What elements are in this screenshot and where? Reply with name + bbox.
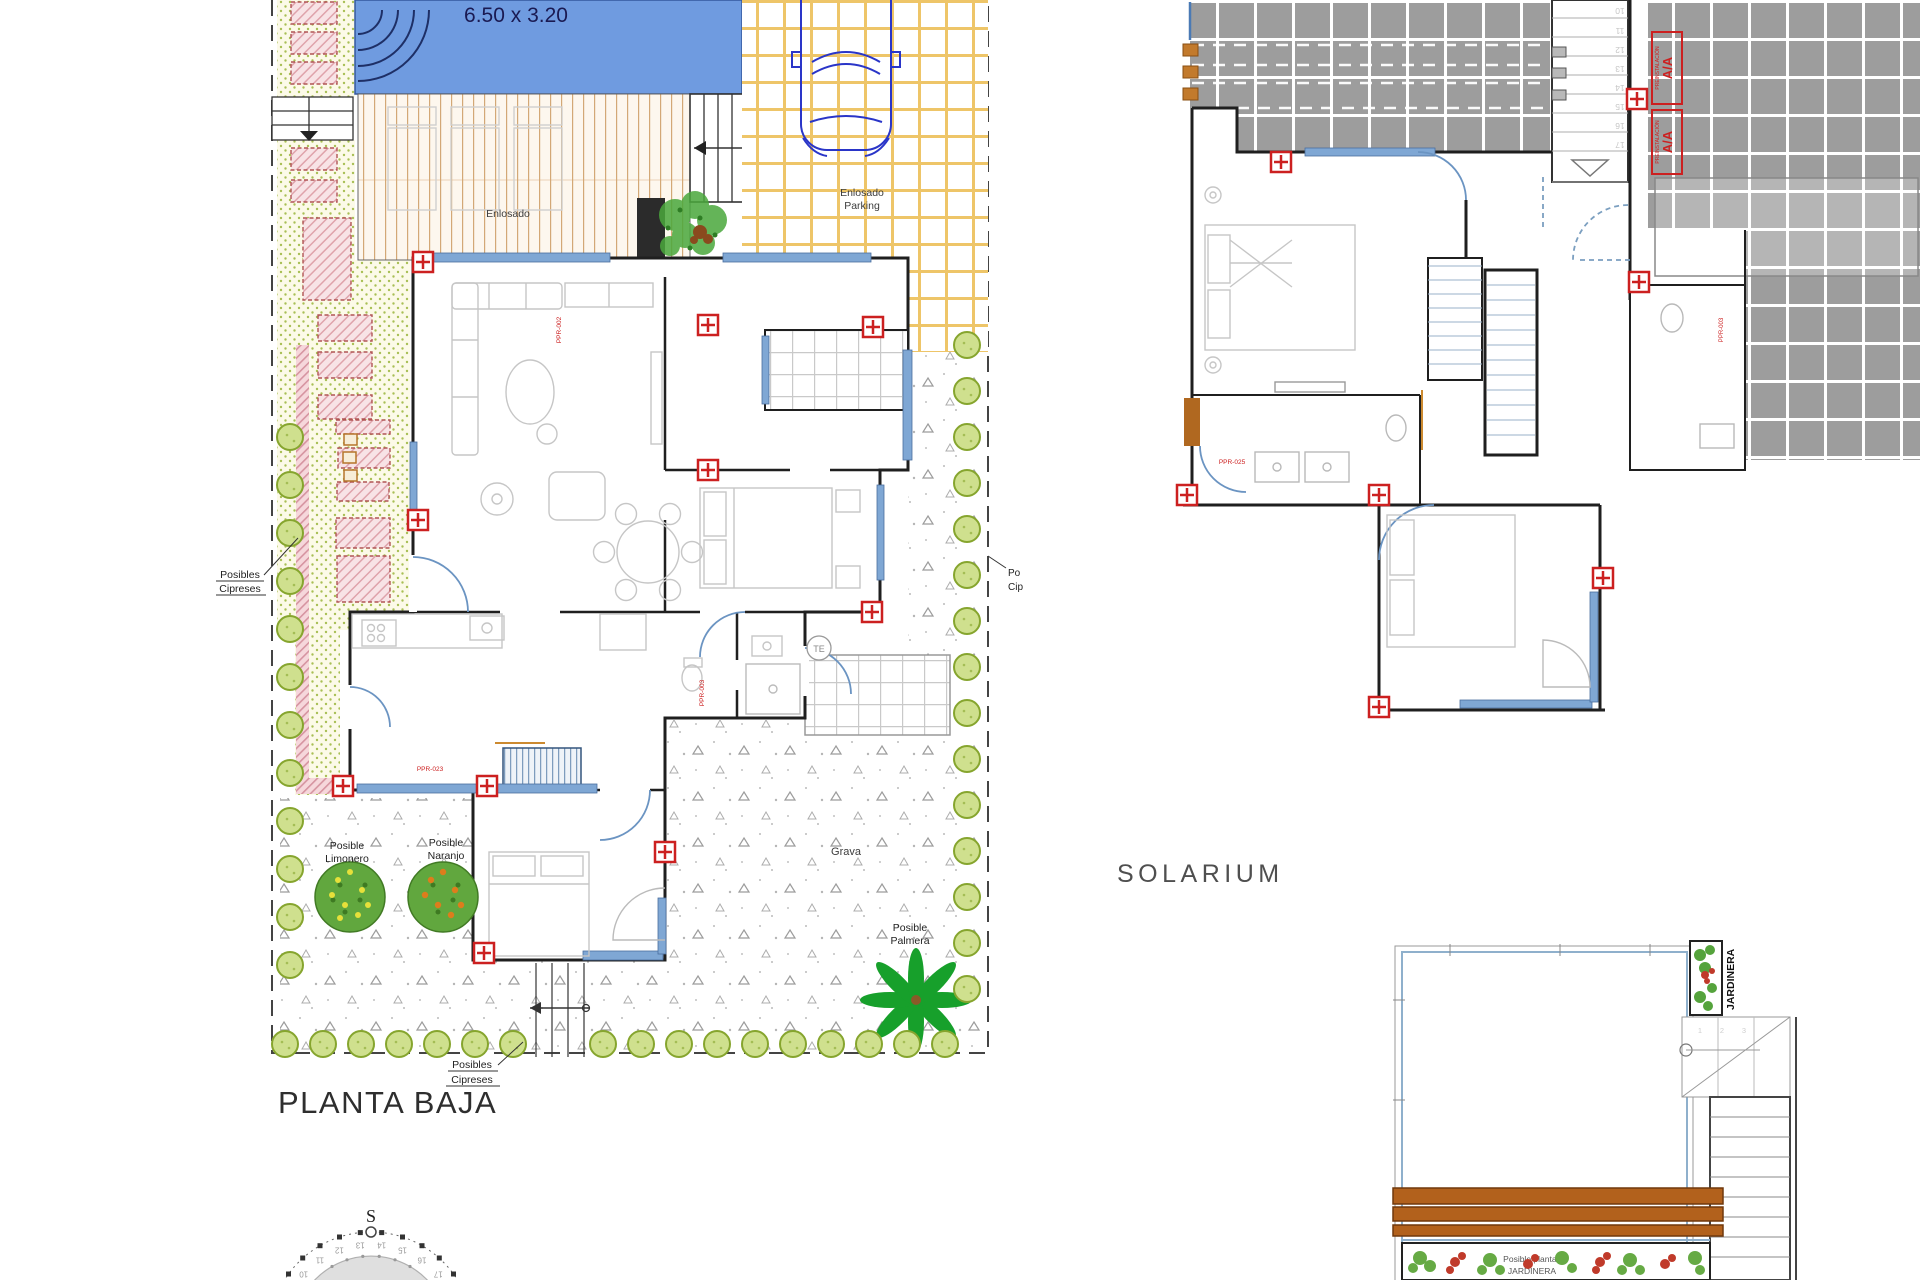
compass-south-label: S bbox=[366, 1206, 376, 1226]
upper-window-markers bbox=[1177, 89, 1649, 717]
bathroom-right bbox=[1630, 285, 1745, 470]
deck-label: Enlosado bbox=[486, 208, 530, 220]
svg-text:10: 10 bbox=[1615, 6, 1625, 16]
jardinera-label: JARDINERA bbox=[1725, 948, 1737, 1010]
patio-tiles-bottom bbox=[805, 655, 950, 735]
upper-stairs: 10 11 12 13 14 15 16 17 bbox=[1552, 0, 1628, 182]
closets-stairs bbox=[1428, 258, 1537, 455]
room-code: PPR-003 bbox=[699, 679, 706, 706]
pool-dimensions: 6.50 x 3.20 bbox=[464, 4, 568, 27]
solarium-title: SOLARIUM bbox=[1117, 860, 1284, 888]
sun-compass: S 10 11 12 13 14 15 16 17 bbox=[269, 1206, 473, 1280]
deck-stairs bbox=[690, 94, 745, 202]
svg-text:12: 12 bbox=[334, 1246, 343, 1255]
svg-text:Cip: Cip bbox=[1008, 582, 1023, 593]
svg-text:2: 2 bbox=[1720, 1026, 1724, 1035]
te-label: TE bbox=[813, 644, 825, 654]
parking-label-1: Enlosado bbox=[840, 187, 884, 199]
svg-text:12: 12 bbox=[1615, 45, 1625, 55]
ac-label: A/A bbox=[1660, 56, 1675, 79]
garden-stairs-top bbox=[272, 97, 353, 141]
ac-small-label: PREINSTALACIÓN bbox=[1654, 120, 1661, 164]
room-code: PPR-003 bbox=[1719, 317, 1725, 342]
roof-tiles-left bbox=[1190, 0, 1550, 152]
svg-text:10: 10 bbox=[299, 1269, 308, 1278]
jardinera-bottom: Posible plantas JARDINERA bbox=[1402, 1240, 1710, 1280]
svg-text:Posibles: Posibles bbox=[220, 569, 260, 581]
lemon-label-2: Limonero bbox=[325, 853, 369, 865]
roof-eave-outline bbox=[1655, 178, 1918, 276]
compass-south-point bbox=[366, 1227, 376, 1237]
svg-text:16: 16 bbox=[417, 1255, 426, 1264]
palm-label-1: Posible bbox=[893, 922, 928, 934]
parking-label-2: Parking bbox=[844, 200, 880, 212]
gravel-label: Grava bbox=[831, 846, 862, 858]
pergola-beams bbox=[1393, 1188, 1723, 1236]
jardinera-top: JARDINERA bbox=[1690, 941, 1737, 1015]
upper-windows bbox=[1305, 148, 1598, 708]
floorplan-drawing: TE bbox=[0, 0, 1920, 1280]
svg-text:Po: Po bbox=[1008, 568, 1021, 579]
edge-vents bbox=[1183, 44, 1198, 100]
orange-label-2: Naranjo bbox=[428, 850, 465, 862]
upper-door-arcs bbox=[1200, 152, 1630, 560]
svg-text:11: 11 bbox=[315, 1255, 324, 1264]
room-code: PPR-002 bbox=[556, 316, 563, 343]
lemon-label-1: Posible bbox=[330, 840, 365, 852]
cypress-label-right: Po Cip bbox=[988, 556, 1023, 593]
lemon-tree bbox=[315, 862, 385, 932]
ac-label: A/A bbox=[1660, 130, 1675, 153]
svg-text:17: 17 bbox=[433, 1269, 442, 1278]
patio-tiles-top bbox=[765, 330, 908, 410]
small-pots bbox=[343, 434, 357, 481]
planter-label-2: JARDINERA bbox=[1508, 1266, 1557, 1276]
svg-text:13: 13 bbox=[1615, 64, 1625, 74]
door-gap bbox=[409, 555, 417, 612]
solarium-terrace-plan: JARDINERA 1 2 3 Posible plantas bbox=[1393, 941, 1796, 1280]
svg-text:14: 14 bbox=[1615, 83, 1625, 93]
room-code: PPR-023 bbox=[417, 766, 444, 773]
orange-label-1: Posible bbox=[429, 837, 464, 849]
svg-text:13: 13 bbox=[355, 1241, 364, 1250]
svg-text:Posibles: Posibles bbox=[452, 1059, 492, 1071]
floorplan-sheet: TE bbox=[0, 0, 1920, 1280]
room-code: PPR-025 bbox=[1219, 459, 1246, 466]
ground-floor-plan: TE bbox=[216, 0, 1023, 1280]
palm-label-2: Palmera bbox=[890, 935, 929, 947]
entry-door-upper bbox=[1184, 398, 1200, 446]
svg-text:16: 16 bbox=[1615, 121, 1625, 131]
svg-text:3: 3 bbox=[1742, 1026, 1746, 1035]
svg-text:Cipreses: Cipreses bbox=[219, 583, 260, 595]
ac-small-label: PREINSTALACIÓN bbox=[1654, 46, 1661, 90]
te-symbol: TE bbox=[807, 636, 831, 660]
svg-text:14: 14 bbox=[377, 1241, 386, 1250]
svg-text:15: 15 bbox=[1615, 102, 1625, 112]
orange-tree bbox=[408, 862, 478, 932]
svg-text:11: 11 bbox=[1615, 26, 1624, 36]
pillar bbox=[637, 198, 665, 260]
upper-floor-plan: 10 11 12 13 14 15 16 17 A/A PREINSTALACI… bbox=[1117, 0, 1920, 888]
svg-text:1: 1 bbox=[1698, 1026, 1702, 1035]
door-gap bbox=[346, 685, 354, 729]
ground-plan-title: PLANTA BAJA bbox=[278, 1085, 497, 1120]
svg-text:15: 15 bbox=[398, 1246, 407, 1255]
svg-text:17: 17 bbox=[1615, 140, 1625, 150]
interior-stairs bbox=[503, 748, 581, 786]
